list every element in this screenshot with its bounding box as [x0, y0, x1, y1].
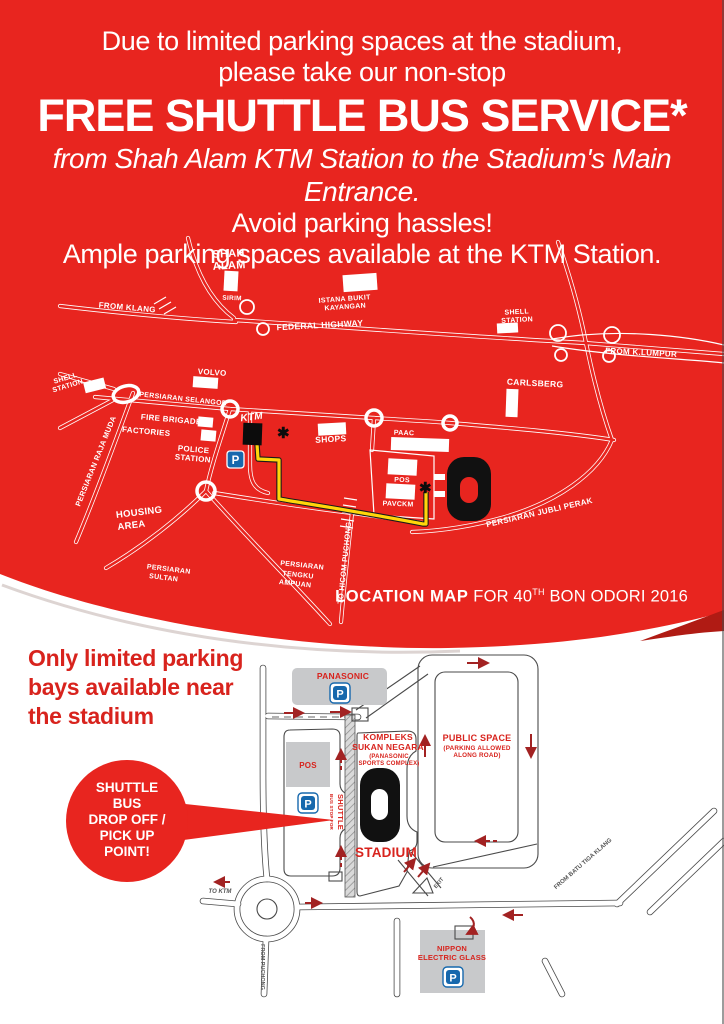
label-from-puchong: FROM PUCHONG	[259, 944, 265, 990]
parking-letter: P	[232, 455, 240, 467]
building-pos	[388, 458, 418, 475]
header-line: Ample parking spaces available at the KT…	[0, 239, 724, 270]
note-line: Only limited parking	[28, 644, 243, 673]
building-pavckm	[386, 483, 416, 499]
callout-line: DROP OFF /	[88, 812, 165, 827]
header-line: please take our non-stop	[0, 57, 724, 88]
label-shell-right: SHELL	[504, 308, 529, 316]
label-panasonic: PANASONIC	[317, 671, 369, 681]
header-subtitle: from Shah Alam KTM Station to the Stadiu…	[0, 142, 724, 208]
label-paac: PAAC	[394, 430, 415, 438]
label-kompleks: SPORTS COMPLEX)	[358, 761, 419, 767]
label-exit: EXIT	[433, 876, 446, 890]
callout-line: BUS	[113, 796, 142, 811]
header-line: Avoid parking hassles!	[0, 208, 724, 239]
building-paac	[391, 437, 449, 452]
location-map-caption: LOCATION MAP FOR 40TH BON ODORI 2016	[0, 587, 688, 607]
building-carlsberg	[506, 389, 519, 417]
parking-letter: P	[449, 973, 456, 985]
building-factories	[201, 429, 217, 441]
building-stadium-annex	[434, 474, 445, 480]
flyer-page: ✱ ✱ P SHAH ALAM SIRIM FROM KLANG ISTANA …	[0, 0, 724, 1024]
label-public-space: PUBLIC SPACE	[443, 733, 512, 743]
label-shops: SHOPS	[315, 433, 347, 445]
label-pavckm: PAVCKM	[382, 500, 413, 508]
stadium-o-logo	[360, 768, 400, 842]
label-kompleks: (PANASONIC	[369, 754, 409, 760]
building-stadium-annex	[434, 491, 445, 497]
parking-icon: P	[443, 967, 463, 987]
building-istana	[342, 273, 377, 292]
header-title: FREE SHUTTLE BUS SERVICE*	[0, 91, 724, 141]
callout-line: SHUTTLE	[96, 780, 158, 795]
label-bus-stop: SHUTTLE	[336, 794, 345, 830]
note-line: the stadium	[28, 702, 243, 731]
callout-line: PICK UP	[100, 828, 155, 843]
label-public-space: (PARKING ALLOWED	[443, 745, 510, 752]
roundabout-island	[257, 899, 277, 919]
label-to-ktm: TO KTM	[209, 889, 233, 895]
label-stadium: STADIUM	[355, 845, 417, 860]
ktm-asterisk-icon: ✱	[277, 425, 290, 442]
caption-text: FOR 40	[469, 588, 533, 606]
building-volvo	[193, 376, 219, 389]
stadium-o-logo	[447, 457, 491, 521]
label-bus-stop: BUS STOP FOR	[329, 794, 334, 831]
label-pos: POS	[394, 477, 410, 485]
label-kompleks: KOMPLEKS	[363, 732, 413, 742]
stadium-asterisk-icon: ✱	[419, 480, 432, 497]
header: Due to limited parking spaces at the sta…	[0, 26, 724, 270]
caption-text: BON ODORI 2016	[545, 588, 688, 606]
parking-icon: P	[298, 793, 318, 813]
building-ktm-station	[243, 423, 263, 446]
public-space-block	[418, 655, 538, 868]
header-line: Due to limited parking spaces at the sta…	[0, 26, 724, 57]
label-public-space: ALONG ROAD)	[453, 752, 500, 759]
note-line: bays available near	[28, 673, 243, 702]
parking-letter: P	[336, 689, 343, 701]
parking-letter: P	[304, 799, 311, 811]
caption-sup: TH	[532, 587, 544, 597]
label-nippon: NIPPON	[437, 944, 467, 953]
parking-icon: P	[330, 683, 350, 703]
open-area-edge	[433, 844, 537, 867]
label-pos: POS	[299, 761, 317, 770]
label-sirim: SIRIM	[222, 295, 242, 303]
caption-bold: LOCATION MAP	[335, 588, 468, 606]
callout-line: POINT!	[104, 844, 150, 859]
parking-icon: P	[227, 451, 244, 468]
label-nippon: ELECTRIC GLASS	[418, 953, 486, 962]
parking-note: Only limited parking bays available near…	[28, 644, 243, 731]
label-from-batu-tiga: FROM BATU TIGA KLANG	[553, 837, 613, 891]
label-kompleks: SUKAN NEGARA	[352, 742, 424, 752]
building-sirim	[223, 271, 238, 292]
